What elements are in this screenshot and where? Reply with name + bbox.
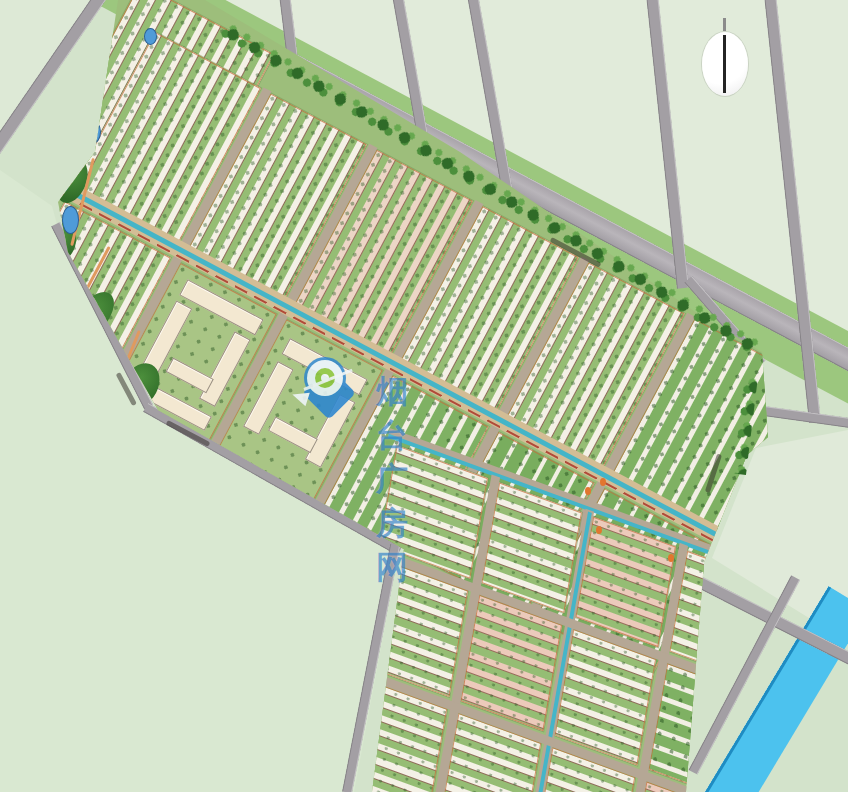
pond bbox=[144, 28, 157, 45]
site-plan-map: 烟台广房网 bbox=[0, 0, 848, 792]
accent-planting bbox=[668, 554, 674, 562]
accent-planting bbox=[596, 526, 602, 534]
pond bbox=[62, 206, 79, 234]
watermark-logo-icon bbox=[296, 358, 362, 424]
pond bbox=[84, 120, 101, 144]
watermark-text: 烟台广房网 bbox=[376, 370, 409, 590]
north-arrow-icon bbox=[702, 32, 748, 96]
accent-planting bbox=[585, 487, 591, 495]
accent-planting bbox=[600, 478, 606, 486]
